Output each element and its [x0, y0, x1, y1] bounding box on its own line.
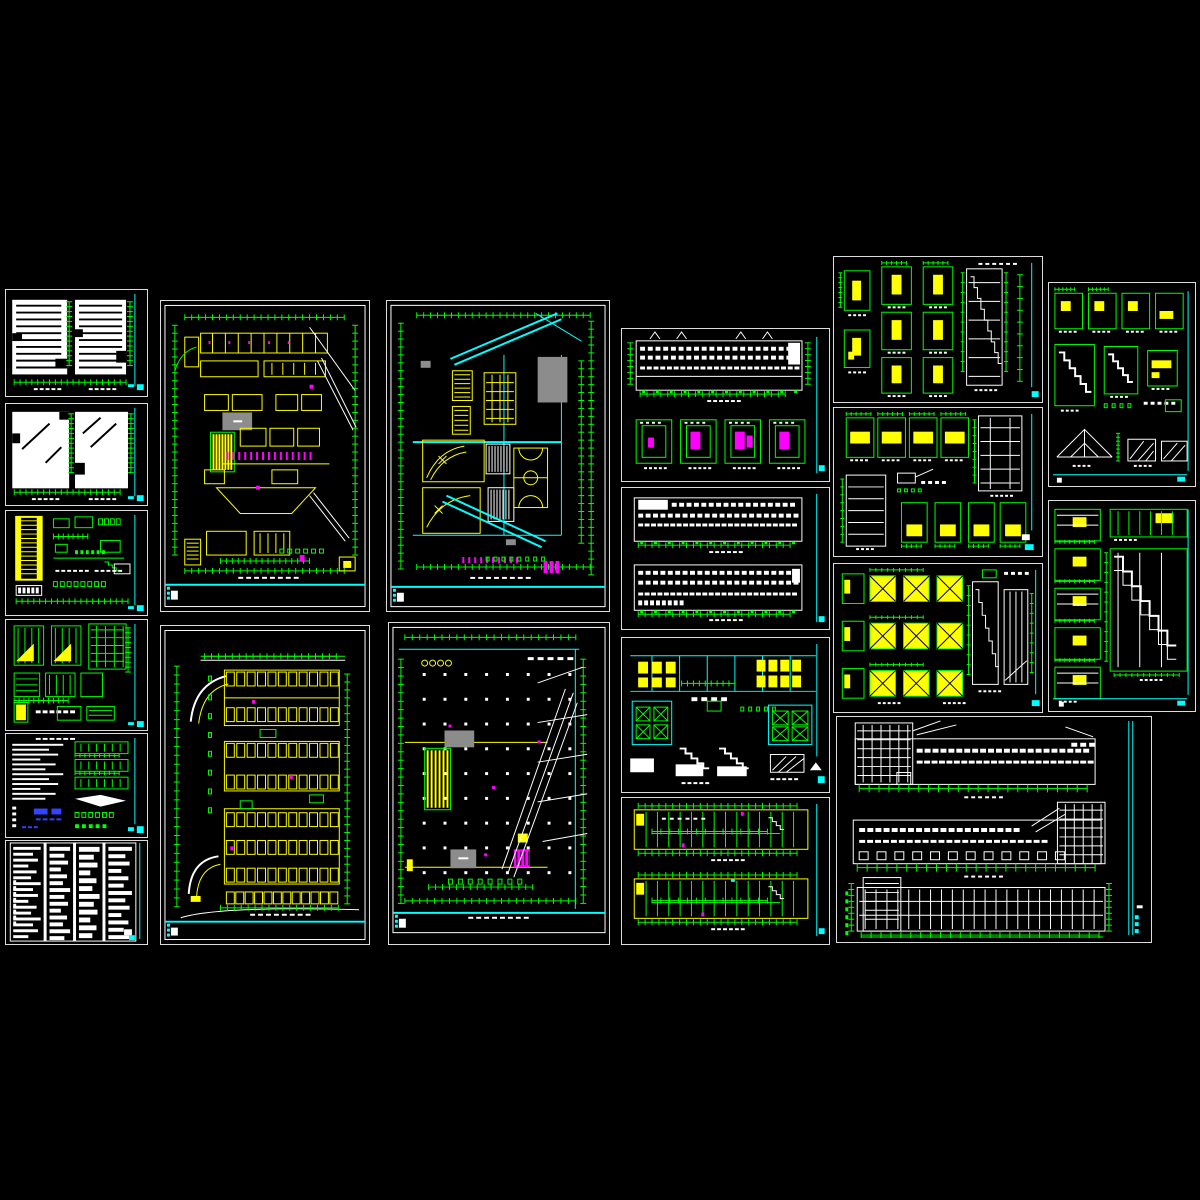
elevations-pair: [621, 487, 830, 630]
column-grid-plan: [388, 622, 610, 945]
sheet-canvas: [6, 734, 147, 837]
stair-details-1: [833, 256, 1043, 403]
sheet-canvas: [834, 257, 1042, 402]
sheet-canvas: [837, 717, 1151, 942]
cad-drawing-collage: [0, 0, 1200, 1200]
sheet-canvas: [6, 620, 147, 730]
long-elevations-sections: [836, 716, 1152, 943]
elevator-details: [833, 563, 1043, 713]
sheet-canvas: [622, 638, 829, 792]
sheet-canvas: [1049, 283, 1195, 486]
basement-parking-plan: [160, 625, 370, 945]
sheet-canvas: [161, 626, 369, 944]
sheet-canvas: [161, 301, 369, 611]
sheet-canvas: [6, 290, 147, 396]
sheet-canvas: [387, 301, 609, 611]
sheet-canvas: [622, 329, 829, 481]
sheet-canvas: [834, 408, 1042, 556]
sheet-canvas: [1049, 501, 1195, 711]
sheet-canvas: [622, 488, 829, 629]
sheet-canvas: [834, 564, 1042, 712]
elevation-with-details: [621, 328, 830, 482]
window-detail-sheet: [5, 619, 148, 731]
sheet-canvas: [6, 841, 147, 944]
stair-roof-details: [1048, 282, 1196, 487]
detail-sheet-ladder: [5, 510, 148, 616]
notes-and-schedule-sheet: [5, 733, 148, 838]
first-floor-plan: [160, 300, 370, 612]
drawing-list-table-sheet: [5, 840, 148, 945]
section-details: [621, 637, 830, 793]
upper-floor-plan: [386, 300, 610, 612]
corridor-plans-pair: [621, 797, 830, 945]
structural-plan-pair-2: [5, 403, 148, 506]
stair-details-2: [833, 407, 1043, 557]
structural-plan-pair-1: [5, 289, 148, 397]
sheet-canvas: [6, 404, 147, 505]
stair-escalator-details: [1048, 500, 1196, 712]
sheet-canvas: [622, 798, 829, 944]
sheet-canvas: [6, 511, 147, 615]
sheet-canvas: [389, 623, 609, 944]
